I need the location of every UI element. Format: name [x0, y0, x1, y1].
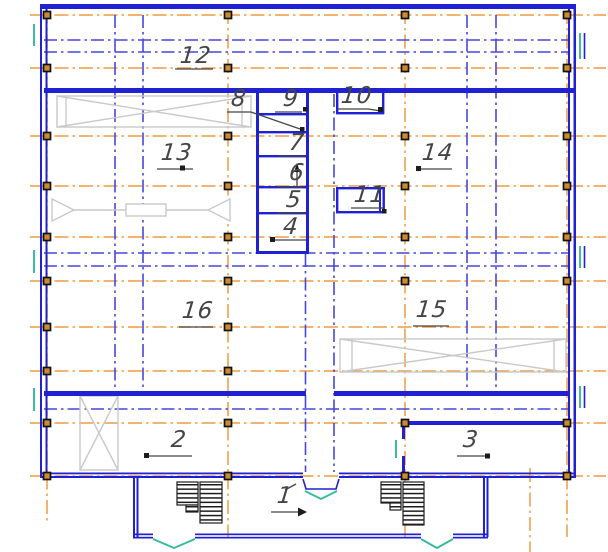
room-label-5: 5 [285, 189, 303, 212]
monorail-beam-symbol [52, 199, 230, 221]
staircase-left [177, 482, 222, 523]
shaft-symbol [80, 396, 118, 470]
room-label-8: 8 [230, 88, 248, 111]
room-label-11: 11 [353, 184, 387, 207]
floor-plan-drawing [0, 0, 608, 552]
room-label-3: 3 [462, 429, 480, 452]
room-label-2: 2 [170, 429, 188, 452]
cad-floor-plan-canvas[interactable]: 1 2 3 4 5 6 7 8 9 10 11 12 13 14 15 16 [0, 0, 608, 552]
room-label-15: 15 [415, 299, 449, 322]
room-label-10: 10 [340, 85, 374, 108]
entrance-door-leaf [303, 479, 339, 489]
staircase-right [381, 482, 424, 525]
room-label-7: 7 [288, 132, 306, 155]
room-label-9: 9 [282, 88, 300, 111]
walls [40, 4, 576, 539]
room-label-16: 16 [181, 300, 215, 323]
room-label-13: 13 [160, 142, 194, 165]
room-label-4: 4 [282, 216, 300, 239]
room-label-6: 6 [288, 162, 306, 185]
crane-truss-symbol-left [57, 96, 251, 127]
room-label-12: 12 [179, 45, 213, 68]
room-label-14: 14 [421, 142, 455, 165]
room-label-1: 1 [276, 485, 294, 508]
crane-truss-symbol-right [340, 339, 566, 372]
